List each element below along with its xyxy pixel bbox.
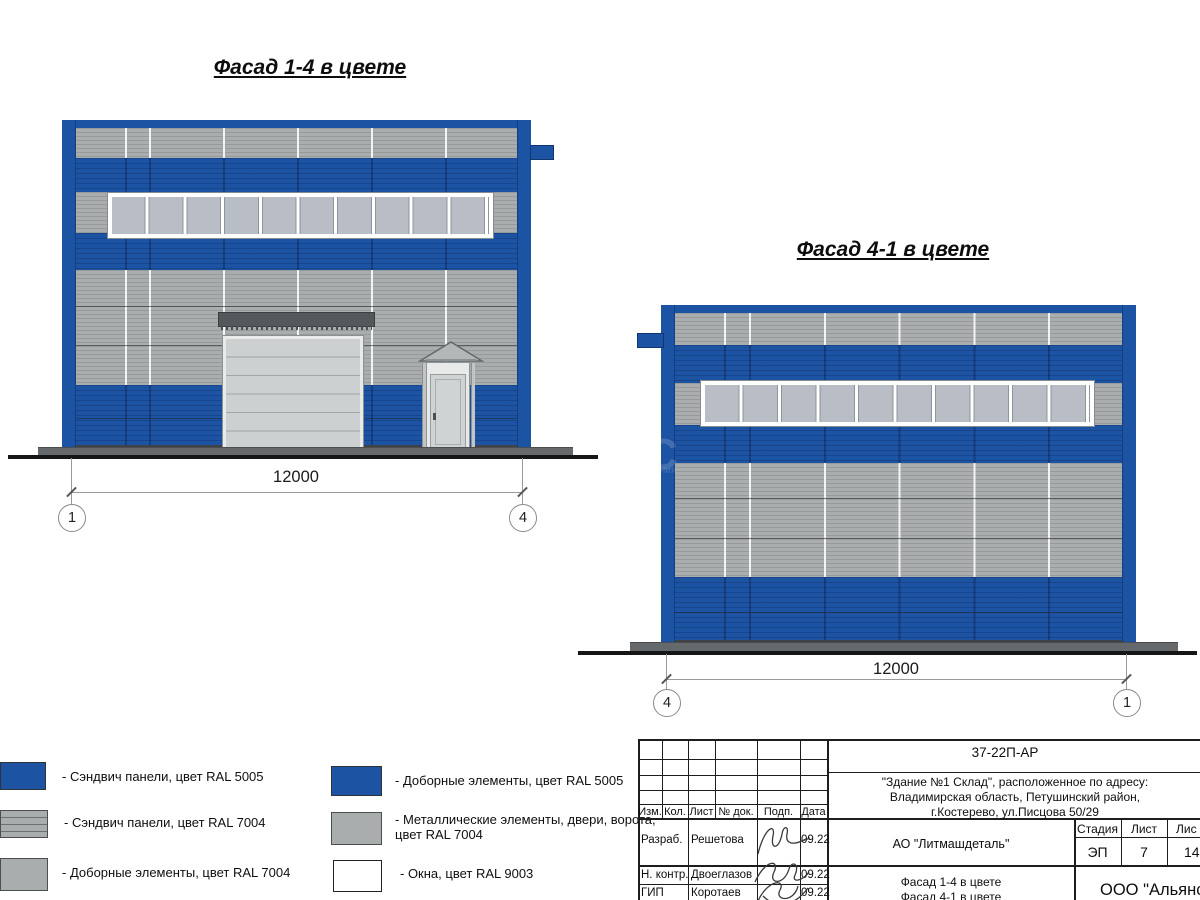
col-kol: Кол. — [662, 806, 688, 818]
col-doc: № док. — [715, 806, 757, 818]
design-company: ООО "Альянс — [1100, 881, 1200, 900]
grid-line — [638, 790, 827, 791]
row-name: Коротаев — [691, 887, 741, 899]
grid-line — [638, 865, 1200, 867]
grid-line — [638, 739, 1200, 741]
grid-line — [638, 759, 827, 760]
sheets-label: Лис — [1176, 822, 1200, 836]
sheet-title: Фасад 1-4 в цвете Фасад 4-1 в цвете — [830, 875, 1072, 900]
row-name: Двоеглазов — [691, 869, 752, 881]
col-izm: Изм. — [638, 806, 662, 818]
grid-line — [1167, 818, 1168, 867]
grid-line — [1074, 837, 1200, 838]
title-block: 37-22П-АР "Здание №1 Склад", расположенн… — [0, 0, 1200, 900]
project-address: "Здание №1 Склад", расположенное по адре… — [835, 775, 1195, 820]
row-role: Разраб. — [641, 834, 682, 846]
grid-line — [638, 775, 827, 776]
signature-icon — [750, 877, 812, 900]
col-list: Лист — [688, 806, 715, 818]
grid-line — [638, 739, 640, 900]
row-role: Н. контр. — [641, 869, 688, 881]
document-code: 37-22П-АР — [830, 745, 1180, 760]
sheet-label: Лист — [1121, 822, 1167, 836]
col-podp: Подп. — [757, 806, 800, 818]
grid-line — [638, 804, 827, 805]
client-company: АО "Литмашдеталь" — [830, 837, 1072, 851]
sheets-value: 14 — [1184, 844, 1200, 860]
row-name: Решетова — [691, 834, 744, 846]
row-role: ГИП — [641, 887, 664, 899]
stage-label: Стадия — [1074, 822, 1121, 836]
col-data: Дата — [800, 806, 827, 818]
grid-line — [827, 772, 1200, 773]
sheet-value: 7 — [1121, 844, 1167, 860]
stage-value: ЭП — [1074, 844, 1121, 860]
drawing-sheet: Фасад 1-4 в цвете — [0, 0, 1200, 900]
